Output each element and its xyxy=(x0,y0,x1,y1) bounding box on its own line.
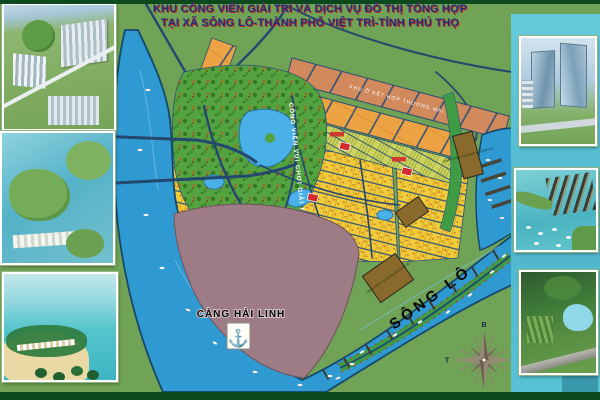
anchor-icon: ⚓ xyxy=(228,328,249,348)
image-detail xyxy=(531,50,555,109)
eco-park-render xyxy=(521,272,596,373)
office-towers-render xyxy=(521,38,595,144)
marina-docks-render xyxy=(516,170,596,250)
image-detail xyxy=(527,316,553,342)
right-image-3-frame xyxy=(519,270,598,375)
left-image-2-frame xyxy=(0,131,115,265)
port-label: CẢNG HẢI LINH xyxy=(197,307,286,320)
beach-resort-render xyxy=(4,274,116,380)
image-detail xyxy=(66,141,110,180)
right-image-2-frame xyxy=(514,168,598,252)
image-detail xyxy=(522,80,532,108)
compass-west-label: T xyxy=(445,358,450,365)
poster-title: KHU CÔNG VIÊN GIẢI TRÍ VÀ DỊCH VỤ ĐÔ THỊ… xyxy=(100,3,520,30)
compass-north-label: B xyxy=(481,322,486,329)
bottom-border-strip xyxy=(0,392,600,400)
title-line-2: TẠI XÃ SÔNG LÔ-THÀNH PHỐ VIỆT TRÌ-TỈNH P… xyxy=(100,17,520,31)
image-detail xyxy=(22,20,55,52)
image-detail xyxy=(9,169,70,221)
image-detail xyxy=(563,304,593,330)
right-image-1-frame xyxy=(519,36,597,146)
lakeside-district-render xyxy=(2,133,113,263)
image-detail xyxy=(544,276,582,300)
image-detail xyxy=(48,96,99,126)
image-detail xyxy=(546,172,596,216)
left-image-1-frame xyxy=(2,3,116,131)
masterplan-poster: KHU Ở KẾT HỢP THƯƠNG MẠI CÔNG VIÊN VUI C… xyxy=(0,0,600,400)
image-detail xyxy=(572,226,596,250)
image-detail xyxy=(521,344,596,373)
image-detail xyxy=(560,43,587,109)
marina-inlet xyxy=(476,128,514,250)
image-detail xyxy=(526,226,531,229)
city-aerial-render xyxy=(4,5,114,129)
left-image-3-frame xyxy=(2,272,118,382)
pond xyxy=(377,210,393,220)
title-line-1: KHU CÔNG VIÊN GIẢI TRÍ VÀ DỊCH VỤ ĐÔ THỊ… xyxy=(100,3,520,17)
image-detail xyxy=(521,117,595,134)
image-detail xyxy=(66,229,104,258)
